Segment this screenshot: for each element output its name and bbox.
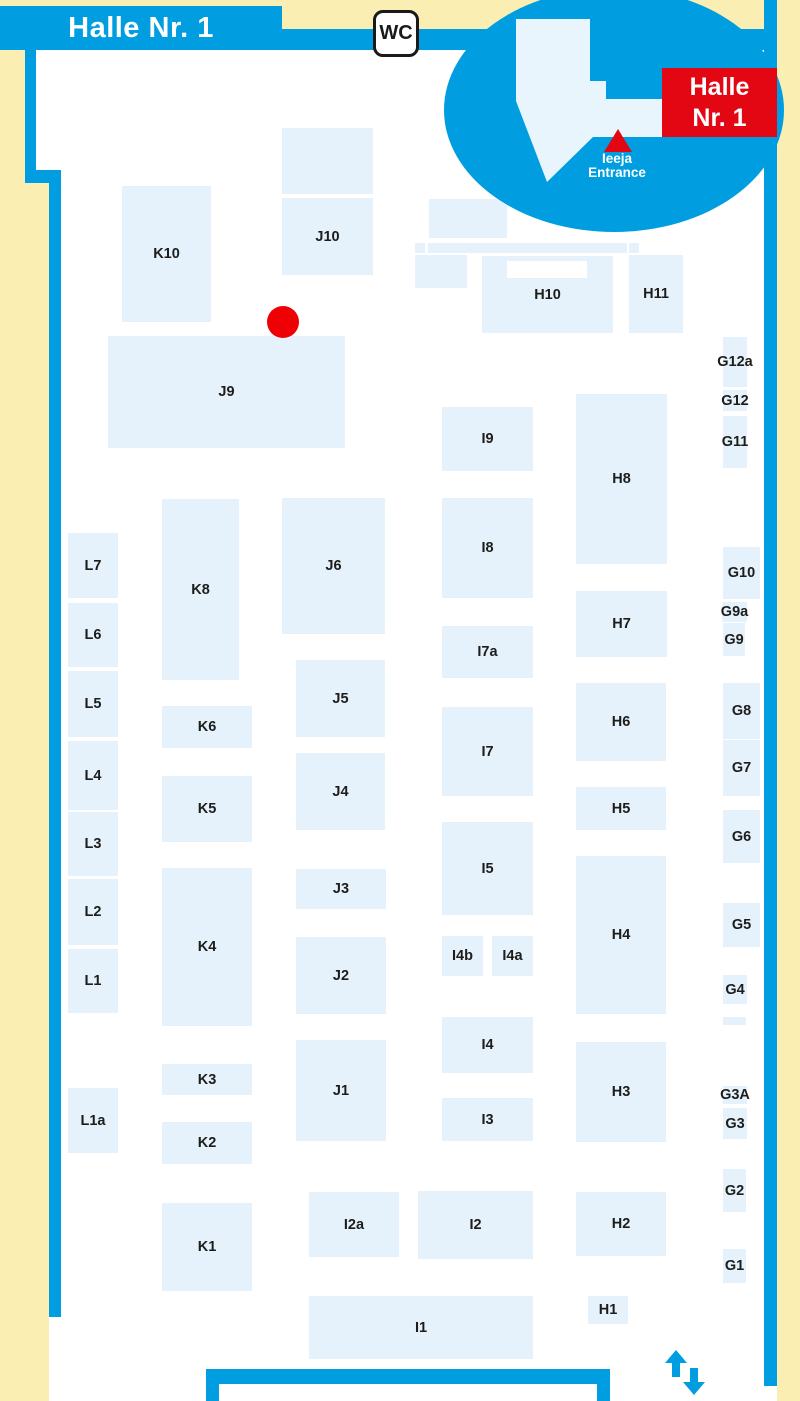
unlabeled-stand <box>629 243 639 253</box>
hall-title: Halle Nr. 1 <box>68 12 214 45</box>
unlabeled-stand <box>723 1017 746 1025</box>
booth-H2: H2 <box>576 1192 666 1256</box>
hall-floor-bottom-right <box>764 1386 777 1401</box>
bottom-doorway-left-post <box>206 1384 219 1401</box>
booth-J4: J4 <box>296 753 385 830</box>
booth-H4: H4 <box>576 856 666 1014</box>
booth-L7: L7 <box>68 533 118 598</box>
booth-G7: G7 <box>723 740 760 796</box>
booth-G12a: G12a <box>723 337 747 387</box>
booth-G1: G1 <box>723 1249 746 1283</box>
booth-H6: H6 <box>576 683 666 761</box>
booth-H7: H7 <box>576 591 667 657</box>
booth-J9: J9 <box>108 336 345 448</box>
booth-J3: J3 <box>296 869 386 909</box>
hall-border-right <box>764 0 777 1386</box>
booth-L1a: L1a <box>68 1088 118 1153</box>
booth-G6: G6 <box>723 810 760 863</box>
booth-L5: L5 <box>68 671 118 737</box>
unlabeled-stand <box>428 243 627 253</box>
booth-G2: G2 <box>723 1169 746 1212</box>
booth-G12: G12 <box>723 390 747 411</box>
wc-sign: WC <box>373 10 419 57</box>
badge-line1: Halle <box>690 72 750 103</box>
booth-J6: J6 <box>282 498 385 634</box>
booth-H8: H8 <box>576 394 667 564</box>
hall-border-left-upper <box>25 29 36 170</box>
hall-title-banner: Halle Nr. 1 <box>0 6 282 50</box>
booth-G8: G8 <box>723 683 760 739</box>
booth-K6: K6 <box>162 706 252 748</box>
booth-I4a: I4a <box>492 936 533 976</box>
entrance-label-line2: Entrance <box>557 166 677 180</box>
unlabeled-stand <box>415 243 425 253</box>
booth-K3: K3 <box>162 1064 252 1095</box>
booth-L1: L1 <box>68 949 118 1013</box>
booth-G9: G9 <box>723 623 745 656</box>
booth-notch <box>507 261 587 278</box>
entrance-label-line1: Ieeja <box>557 152 677 166</box>
booth-G4: G4 <box>723 975 747 1004</box>
booth-H3: H3 <box>576 1042 666 1142</box>
booth-G3A: G3A <box>723 1086 747 1104</box>
hall-plan: K10J10J9H10H11G12aG12G11I9H8J6K8L7I8G10L… <box>0 0 800 1401</box>
booth-I2a: I2a <box>309 1192 399 1257</box>
booth-J5: J5 <box>296 660 385 737</box>
badge-line2: Nr. 1 <box>692 103 746 134</box>
booth-L3: L3 <box>68 812 118 876</box>
unlabeled-stand <box>415 255 467 288</box>
unlabeled-stand <box>429 199 507 238</box>
booth-I5: I5 <box>442 822 533 915</box>
booth-G5: G5 <box>723 903 760 947</box>
booth-K10: K10 <box>122 186 211 322</box>
booth-I8: I8 <box>442 498 533 598</box>
hall-floor-bottom-left <box>49 1317 61 1401</box>
booth-I4b: I4b <box>442 936 483 976</box>
booth-G3: G3 <box>723 1108 747 1139</box>
booth-I4: I4 <box>442 1017 533 1073</box>
booth-I7a: I7a <box>442 626 533 678</box>
booth-L6: L6 <box>68 603 118 667</box>
bottom-doorway-top <box>206 1369 610 1384</box>
bottom-doorway-right-post <box>597 1384 610 1401</box>
inset-hall-badge: Halle Nr. 1 <box>662 68 777 137</box>
red-dot-marker <box>267 306 299 338</box>
booth-H10: H10 <box>482 256 613 333</box>
booth-I1: I1 <box>309 1296 533 1359</box>
booth-I2: I2 <box>418 1191 533 1259</box>
booth-L2: L2 <box>68 879 118 945</box>
booth-L4: L4 <box>68 741 118 810</box>
booth-H11: H11 <box>629 255 683 333</box>
booth-H5: H5 <box>576 787 666 830</box>
hall-border-left-lower <box>49 170 61 1317</box>
booth-I9: I9 <box>442 407 533 471</box>
booth-J2: J2 <box>296 937 386 1014</box>
booth-J10: J10 <box>282 198 373 275</box>
unlabeled-stand <box>282 128 373 194</box>
booth-H1: H1 <box>588 1296 628 1324</box>
booth-K5: K5 <box>162 776 252 842</box>
booth-I7: I7 <box>442 707 533 796</box>
booth-G11: G11 <box>723 416 747 468</box>
booth-J1: J1 <box>296 1040 386 1141</box>
booth-K2: K2 <box>162 1122 252 1164</box>
wc-label: WC <box>379 22 412 45</box>
up-down-arrows-icon <box>645 1342 705 1401</box>
booth-G10: G10 <box>723 547 760 599</box>
booth-I3: I3 <box>442 1098 533 1141</box>
booth-K4: K4 <box>162 868 252 1026</box>
booth-K8: K8 <box>162 499 239 680</box>
booth-K1: K1 <box>162 1203 252 1291</box>
entrance-label: Ieeja Entrance <box>557 152 677 180</box>
booth-G9a: G9a <box>722 602 747 622</box>
